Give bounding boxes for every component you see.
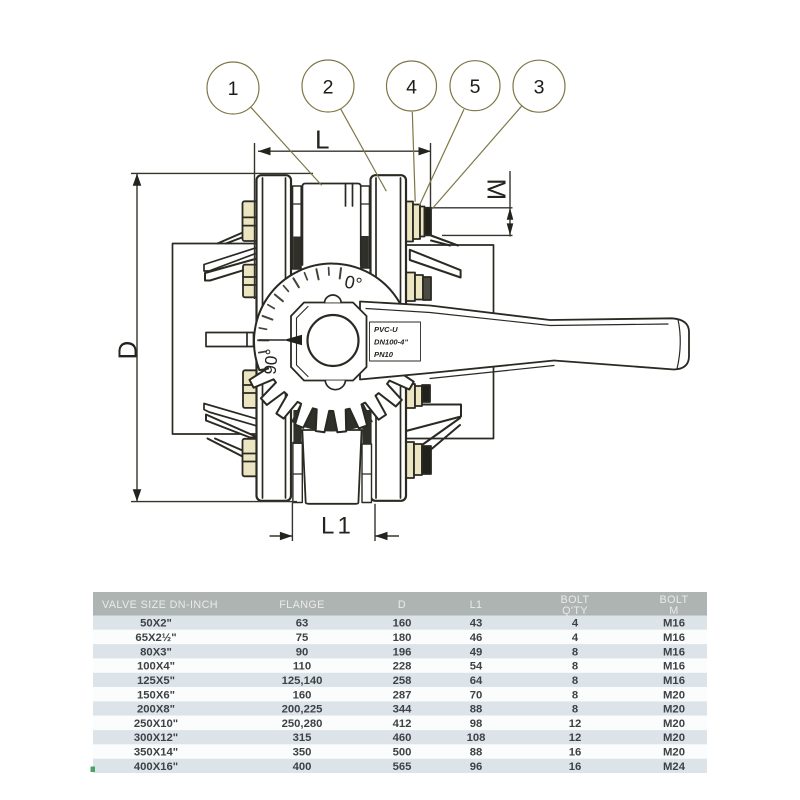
svg-text:300X12": 300X12"	[134, 732, 178, 744]
svg-text:287: 287	[393, 689, 412, 701]
svg-text:M20: M20	[663, 718, 685, 730]
svg-text:350: 350	[293, 747, 312, 759]
svg-text:4: 4	[572, 632, 579, 644]
svg-text:43: 43	[470, 618, 483, 630]
svg-text:4: 4	[406, 77, 417, 99]
svg-text:88: 88	[470, 704, 483, 716]
svg-text:400X16": 400X16"	[134, 761, 178, 773]
svg-text:8: 8	[572, 704, 578, 716]
svg-text:96: 96	[470, 761, 483, 773]
svg-text:200,225: 200,225	[282, 704, 323, 716]
svg-text:M20: M20	[663, 704, 685, 716]
svg-text:160: 160	[293, 689, 312, 701]
svg-text:PVC-U: PVC-U	[374, 325, 398, 334]
svg-text:90°: 90°	[261, 348, 282, 375]
svg-text:5: 5	[470, 76, 481, 98]
svg-text:M20: M20	[663, 689, 685, 701]
svg-text:258: 258	[393, 675, 412, 687]
svg-text:3: 3	[534, 77, 545, 99]
svg-text:75: 75	[296, 632, 309, 644]
svg-text:M16: M16	[663, 661, 685, 673]
svg-text:160: 160	[393, 618, 412, 630]
svg-text:M: M	[482, 179, 512, 201]
svg-text:2: 2	[323, 77, 334, 99]
svg-text:1: 1	[228, 78, 239, 100]
svg-text:Q'TY: Q'TY	[562, 605, 588, 617]
svg-text:M16: M16	[663, 618, 685, 630]
svg-text:M24: M24	[663, 761, 686, 773]
svg-text:54: 54	[470, 661, 483, 673]
svg-text:M20: M20	[663, 732, 685, 744]
svg-text:500: 500	[393, 747, 412, 759]
svg-text:49: 49	[470, 646, 483, 658]
svg-text:8: 8	[572, 689, 578, 701]
svg-text:1: 1	[338, 513, 351, 540]
svg-text:80X3": 80X3"	[140, 646, 172, 658]
svg-text:12: 12	[569, 718, 582, 730]
svg-text:VALVE SIZE DN-INCH: VALVE SIZE DN-INCH	[102, 599, 218, 611]
svg-text:50X2": 50X2"	[140, 618, 172, 630]
svg-text:12: 12	[569, 732, 582, 744]
svg-text:344: 344	[393, 704, 413, 716]
svg-text:250,280: 250,280	[282, 718, 323, 730]
svg-text:PN10: PN10	[374, 350, 394, 359]
svg-text:46: 46	[470, 632, 483, 644]
svg-text:125,140: 125,140	[282, 675, 323, 687]
svg-text:M16: M16	[663, 646, 685, 658]
svg-text:565: 565	[393, 761, 412, 773]
svg-text:180: 180	[393, 632, 412, 644]
svg-text:M20: M20	[663, 747, 685, 759]
svg-text:200X8": 200X8"	[137, 704, 175, 716]
svg-text:8: 8	[572, 675, 578, 687]
svg-text:FLANGE: FLANGE	[279, 599, 325, 611]
svg-text:100X4": 100X4"	[137, 661, 175, 673]
svg-text:D: D	[398, 599, 406, 611]
svg-text:150X6": 150X6"	[137, 689, 175, 701]
svg-text:65X2½": 65X2½"	[135, 632, 176, 644]
svg-text:110: 110	[293, 661, 311, 673]
svg-text:70: 70	[470, 689, 483, 701]
svg-text:460: 460	[393, 732, 412, 744]
svg-text:16: 16	[569, 747, 582, 759]
svg-text:8: 8	[572, 646, 578, 658]
svg-text:88: 88	[470, 747, 483, 759]
svg-text:400: 400	[293, 761, 312, 773]
svg-text:64: 64	[470, 675, 483, 687]
svg-text:63: 63	[296, 618, 309, 630]
svg-text:M: M	[669, 605, 678, 617]
svg-text:196: 196	[393, 646, 412, 658]
svg-text:315: 315	[293, 732, 312, 744]
svg-text:L1: L1	[470, 599, 483, 611]
svg-text:D: D	[112, 341, 142, 360]
svg-text:412: 412	[393, 718, 412, 730]
svg-text:350X14": 350X14"	[134, 747, 178, 759]
svg-text:16: 16	[569, 761, 582, 773]
svg-text:98: 98	[470, 718, 483, 730]
svg-text:250X10": 250X10"	[134, 718, 178, 730]
svg-text:125X5": 125X5"	[137, 675, 175, 687]
svg-text:DN100-4": DN100-4"	[374, 338, 408, 347]
svg-text:8: 8	[572, 661, 578, 673]
svg-text:L: L	[321, 513, 334, 540]
svg-text:L: L	[315, 125, 329, 155]
svg-text:M16: M16	[663, 675, 685, 687]
svg-text:4: 4	[572, 618, 579, 630]
svg-text:90: 90	[296, 646, 309, 658]
svg-text:M16: M16	[663, 632, 685, 644]
svg-text:228: 228	[393, 661, 412, 673]
svg-text:108: 108	[467, 732, 486, 744]
